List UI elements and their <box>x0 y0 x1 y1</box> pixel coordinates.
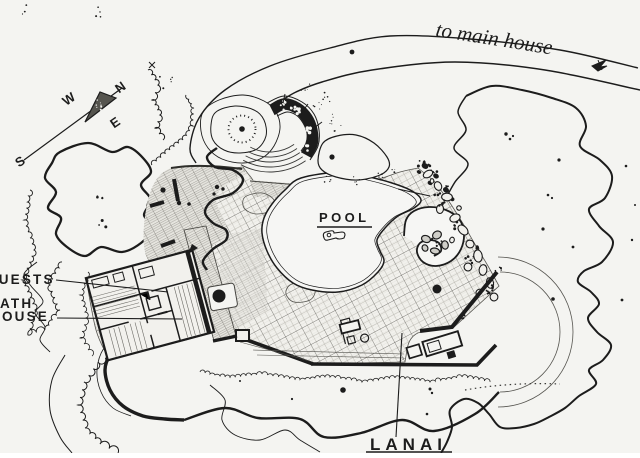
svg-text:POOL: POOL <box>319 210 369 225</box>
svg-text:LANAI: LANAI <box>370 435 447 453</box>
svg-text:HOUSE: HOUSE <box>0 309 49 324</box>
svg-text:GUESTS: GUESTS <box>0 272 55 287</box>
